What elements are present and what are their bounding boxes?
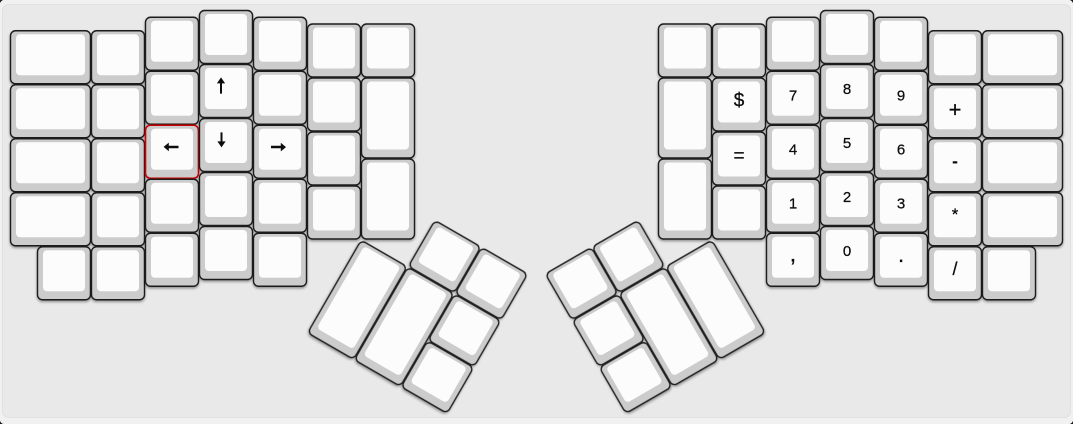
svg-text:2: 2 bbox=[843, 189, 851, 206]
svg-text:,: , bbox=[790, 240, 796, 266]
svg-text:1: 1 bbox=[789, 196, 797, 213]
svg-text:=: = bbox=[733, 146, 744, 167]
svg-text:6: 6 bbox=[897, 142, 905, 159]
svg-text:8: 8 bbox=[843, 81, 851, 98]
svg-text:3: 3 bbox=[897, 196, 905, 213]
svg-text:.: . bbox=[898, 242, 904, 267]
svg-text:7: 7 bbox=[789, 88, 797, 105]
svg-text:*: * bbox=[952, 205, 959, 224]
svg-text:+: + bbox=[949, 97, 962, 122]
svg-text:/: / bbox=[952, 259, 957, 279]
svg-text:0: 0 bbox=[843, 243, 851, 260]
svg-text:$: $ bbox=[734, 91, 745, 112]
svg-text:9: 9 bbox=[897, 88, 905, 105]
svg-text:4: 4 bbox=[789, 142, 797, 159]
svg-text:5: 5 bbox=[843, 135, 851, 152]
